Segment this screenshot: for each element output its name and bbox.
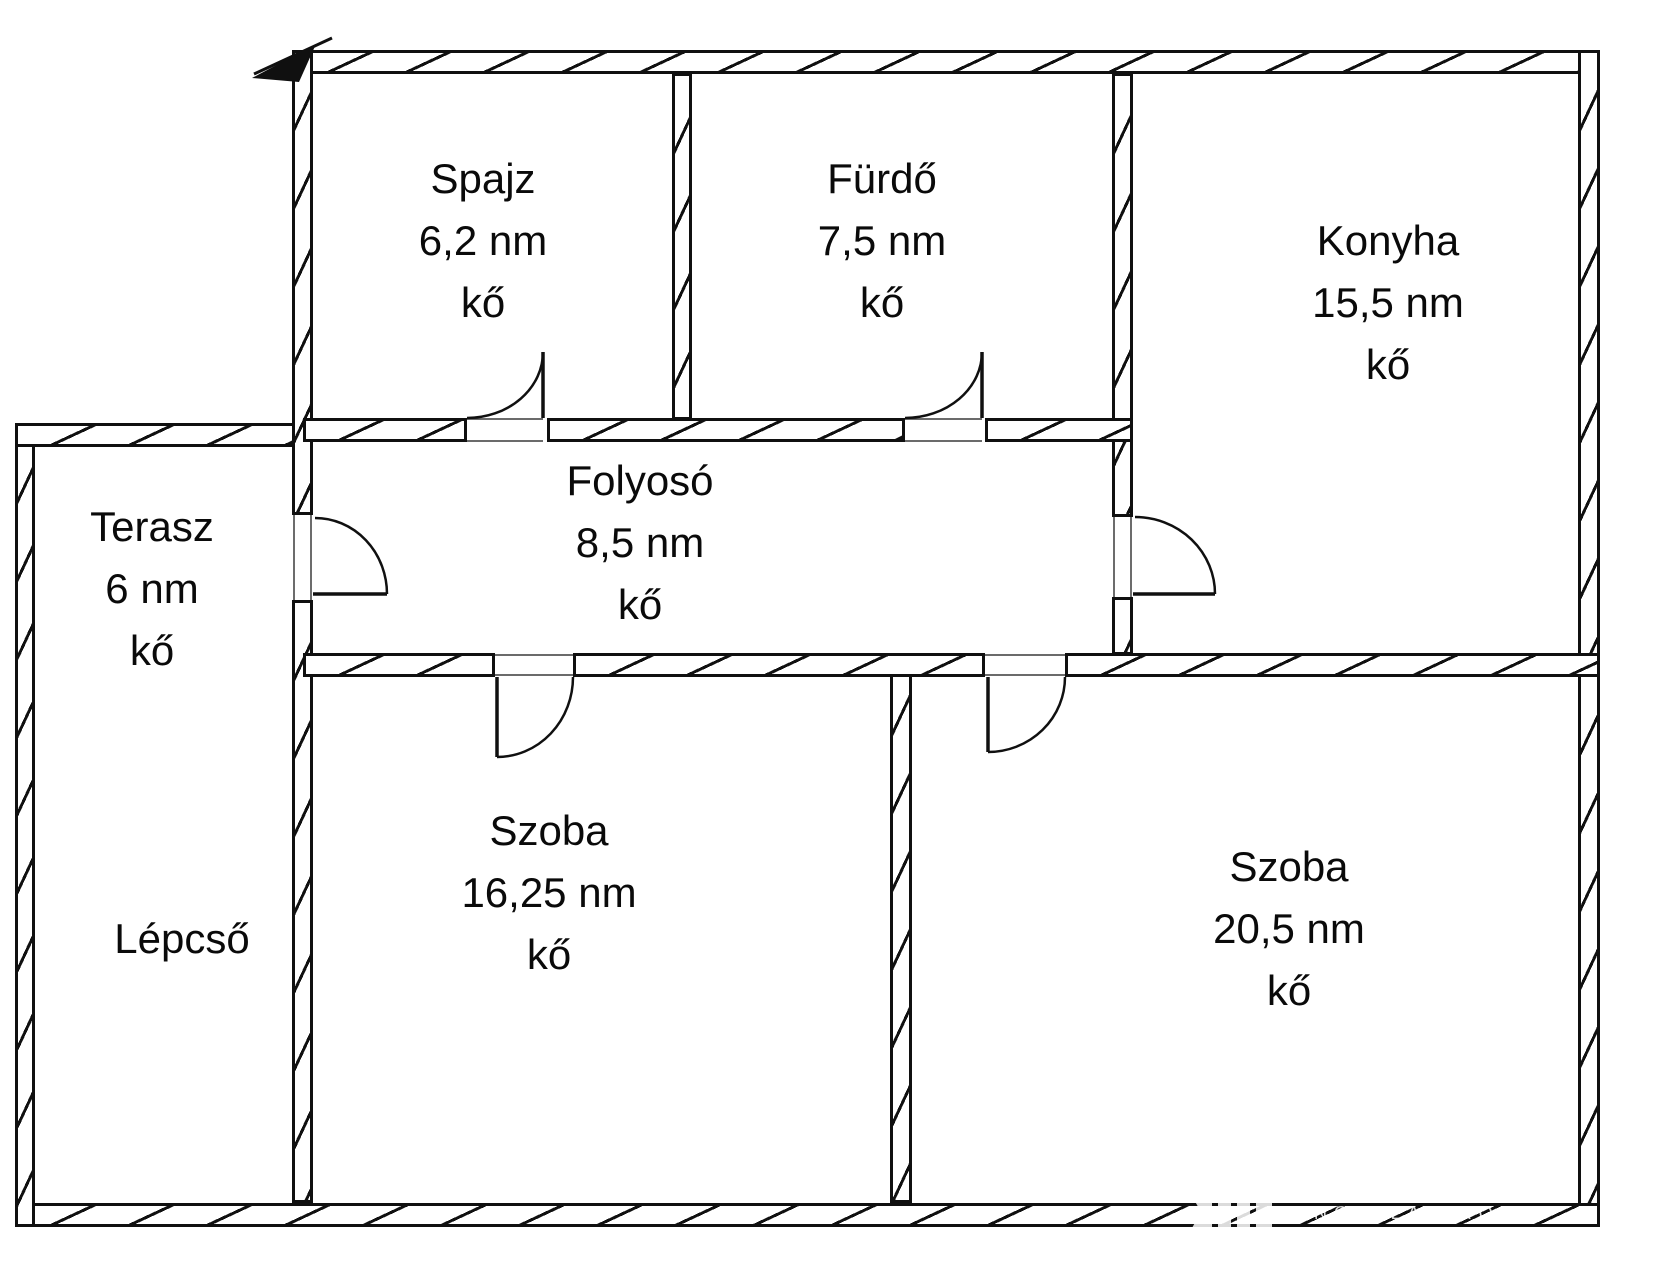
wall-terasz-top xyxy=(15,423,313,447)
door-arc-terasz xyxy=(315,518,387,594)
room-label-lepcso: Lépcső xyxy=(114,908,249,970)
room-label-terasz: Terasz 6 nm kő xyxy=(90,496,214,682)
floor-plan: Spajz 6,2 nm kő Fürdő 7,5 nm kő Konyha 1… xyxy=(0,0,1676,1280)
door-leaves xyxy=(313,352,1215,757)
room-name: Szoba xyxy=(461,800,636,862)
room-floor: kő xyxy=(1312,334,1464,396)
watermark-text: INGATLANIRODA xyxy=(1302,1203,1539,1224)
door-arc-spajz xyxy=(467,352,543,418)
room-floor: kő xyxy=(1213,960,1365,1022)
room-label-szoba-1: Szoba 16,25 nm kő xyxy=(461,800,636,986)
wall-furdo-konyha-upper xyxy=(1112,73,1133,517)
room-name: Fürdő xyxy=(818,148,946,210)
wall-folyoso-top-2 xyxy=(547,418,905,442)
room-name: Folyosó xyxy=(566,450,713,512)
room-area: 20,5 nm xyxy=(1213,898,1365,960)
door-arcs xyxy=(315,352,1215,757)
room-area: 15,5 nm xyxy=(1312,272,1464,334)
room-label-konyha: Konyha 15,5 nm kő xyxy=(1312,210,1464,396)
room-area: 6 nm xyxy=(90,558,214,620)
wall-folyoso-bottom-1 xyxy=(303,653,495,677)
wall-folyoso-top-1 xyxy=(303,418,467,442)
door-arc-szoba-2 xyxy=(988,677,1065,752)
wall-outer-top xyxy=(292,50,1600,74)
wall-outer-right xyxy=(1578,50,1600,1227)
wall-folyoso-bottom-2 xyxy=(573,653,985,677)
room-area: 7,5 nm xyxy=(818,210,946,272)
room-label-szoba-2: Szoba 20,5 nm kő xyxy=(1213,836,1365,1022)
room-area: 6,2 nm xyxy=(419,210,547,272)
wall-terasz-left xyxy=(15,423,35,1227)
room-name: Terasz xyxy=(90,496,214,558)
door-arc-furdo xyxy=(905,352,982,418)
wall-furdo-konyha-lower xyxy=(1112,597,1133,655)
door-arc-konyha xyxy=(1135,517,1215,594)
room-name: Lépcső xyxy=(114,908,249,970)
room-label-furdo: Fürdő 7,5 nm kő xyxy=(818,148,946,334)
wall-szoba-divider xyxy=(890,655,912,1203)
room-name: Szoba xyxy=(1213,836,1365,898)
room-label-folyoso: Folyosó 8,5 nm kő xyxy=(566,450,713,636)
room-floor: kő xyxy=(90,620,214,682)
wall-folyoso-top-3 xyxy=(985,418,1133,442)
door-arc-szoba-1 xyxy=(497,677,573,757)
room-name: Konyha xyxy=(1312,210,1464,272)
room-area: 8,5 nm xyxy=(566,512,713,574)
room-area: 16,25 nm xyxy=(461,862,636,924)
wall-folyoso-bottom-3 xyxy=(1065,653,1600,677)
room-label-spajz: Spajz 6,2 nm kő xyxy=(419,148,547,334)
room-floor: kő xyxy=(461,924,636,986)
room-floor: kő xyxy=(419,272,547,334)
room-floor: kő xyxy=(566,574,713,636)
wall-main-left-lower xyxy=(292,600,313,1203)
room-floor: kő xyxy=(818,272,946,334)
room-name: Spajz xyxy=(419,148,547,210)
wall-main-left-upper xyxy=(292,50,313,515)
wall-spajz-furdo xyxy=(672,73,692,420)
